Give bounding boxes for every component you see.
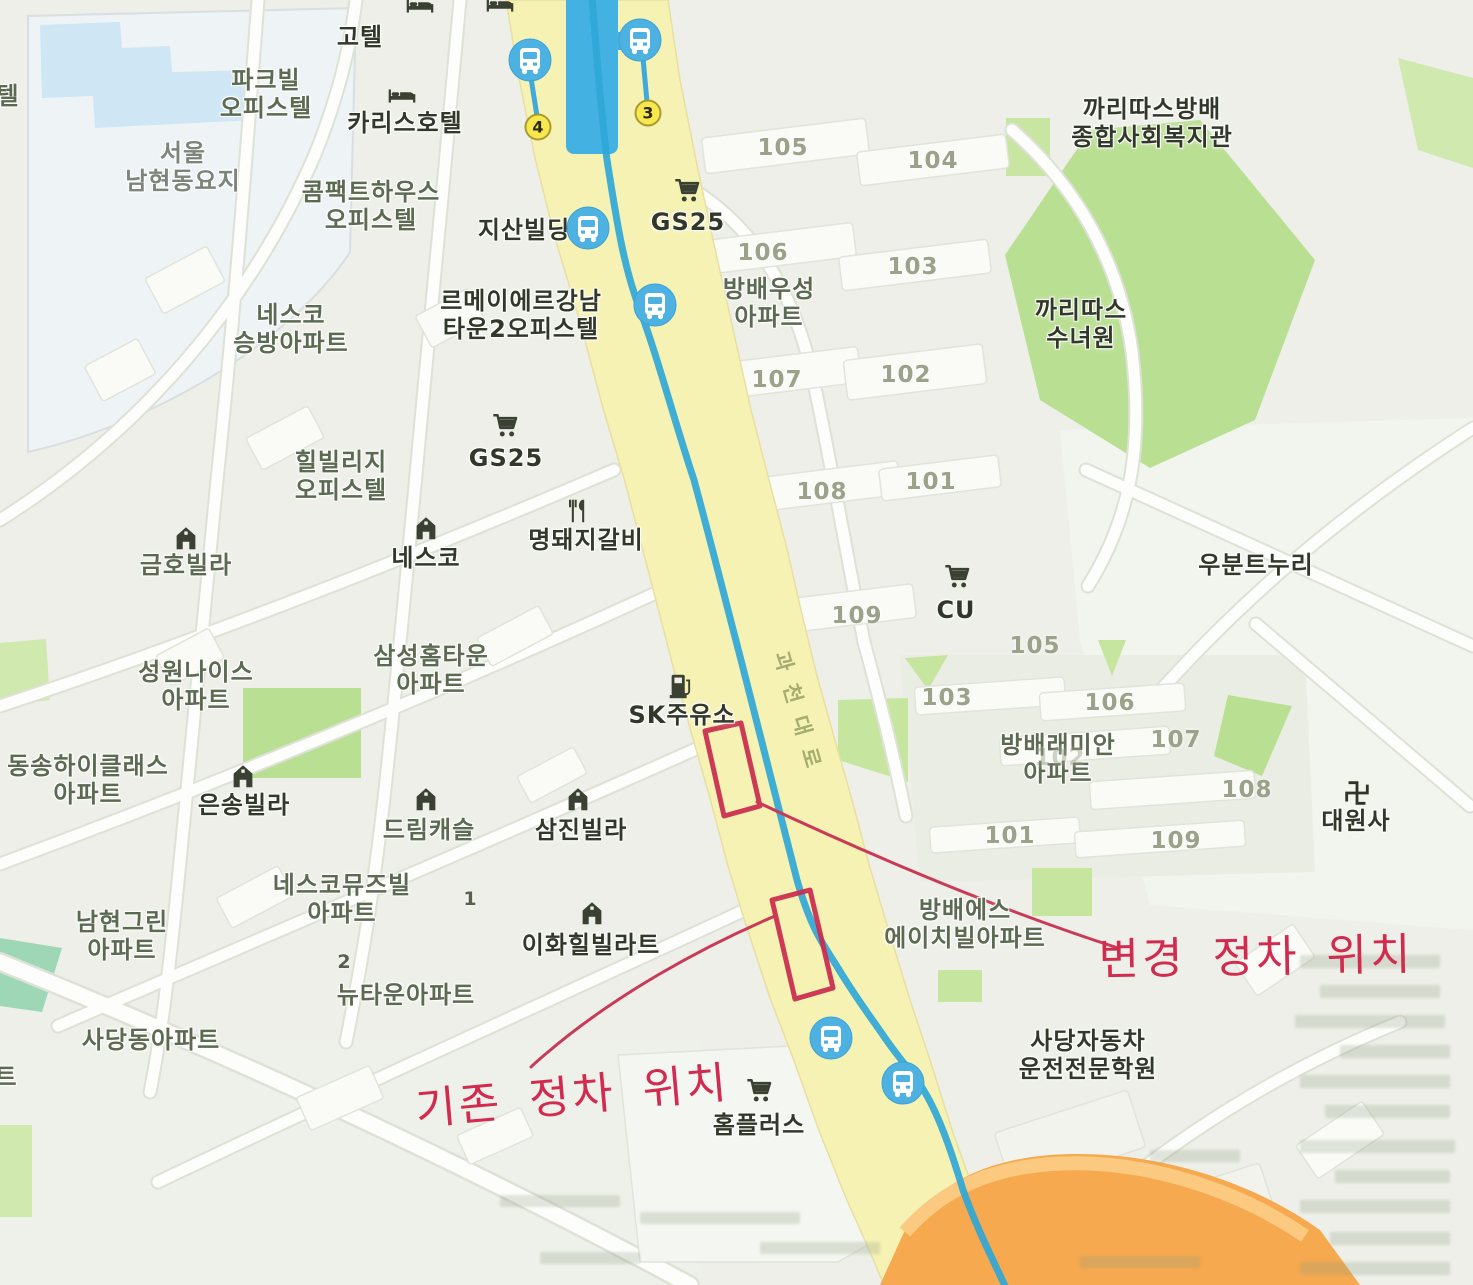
basemap-svg: [0, 0, 1473, 1285]
map-canvas: 고텔파크빌 오피스텔카리스호텔서울 남현동요지콤팩트하우스 오피스텔지산빌딩GS…: [0, 0, 1473, 1285]
changed-stop-handwriting: 변경 정차 위치: [1098, 918, 1414, 987]
